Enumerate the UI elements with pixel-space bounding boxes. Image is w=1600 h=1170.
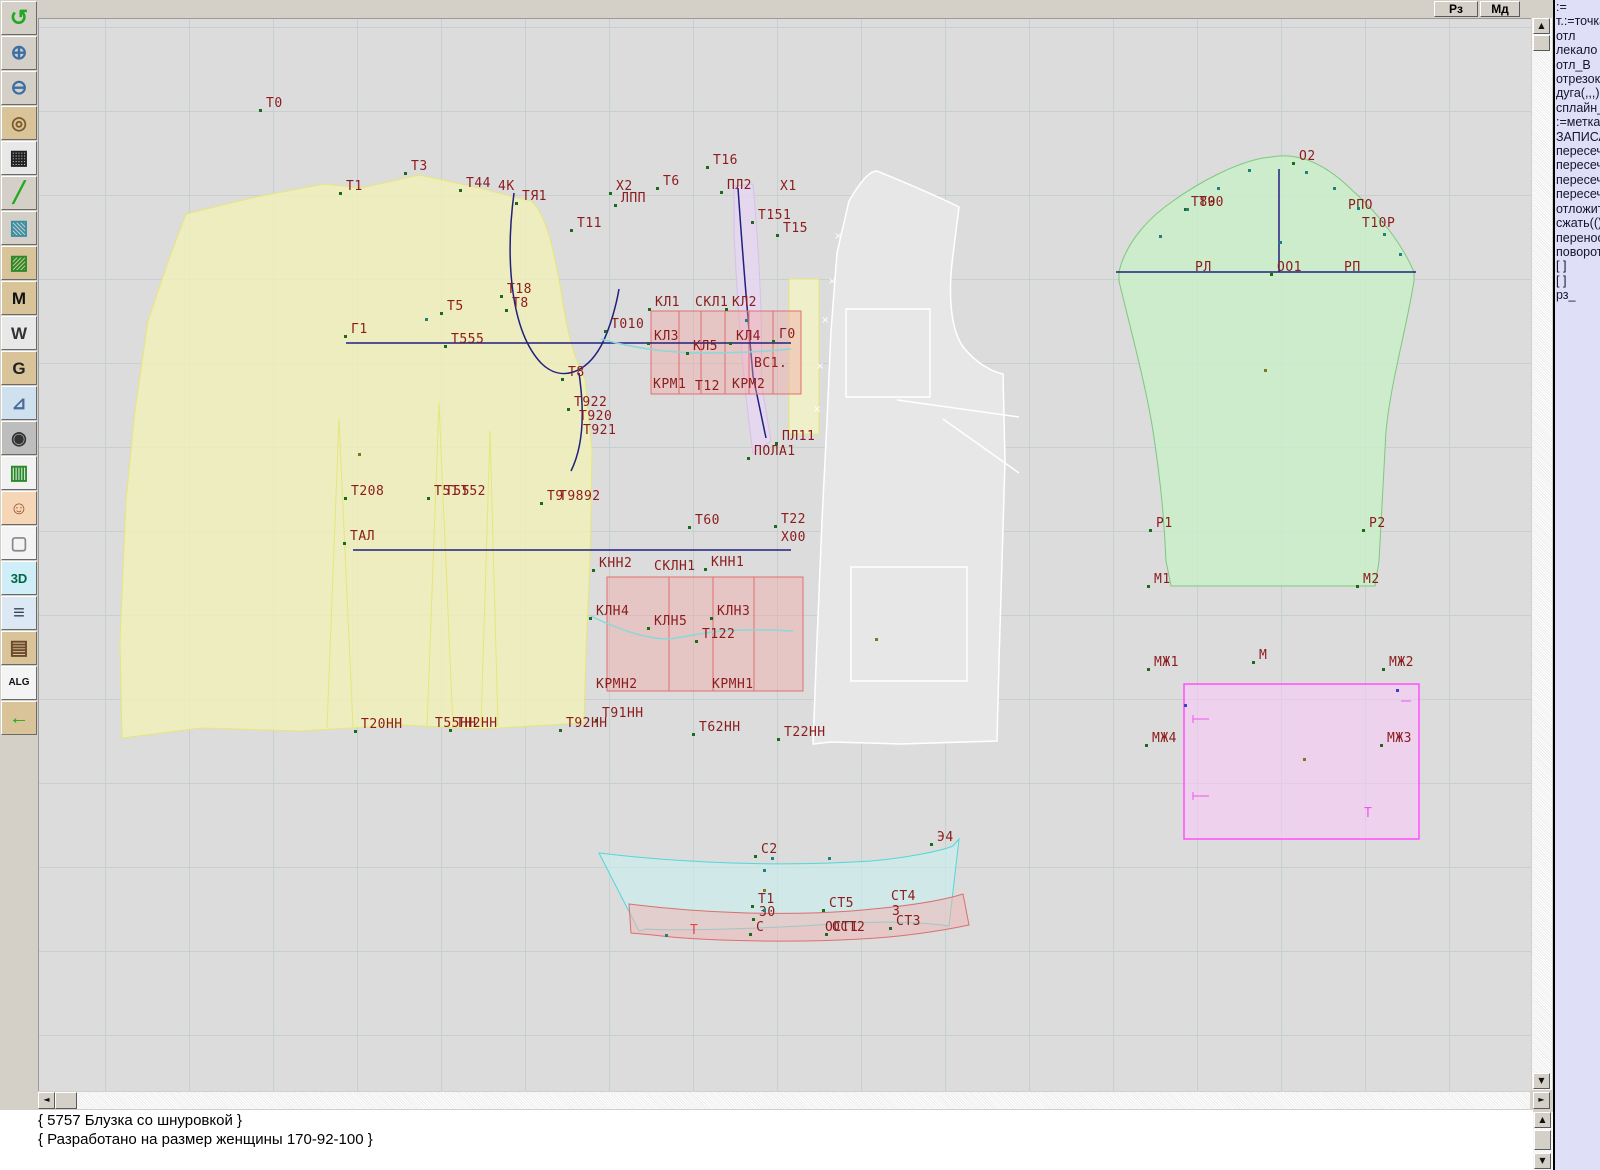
vscroll-up-button[interactable]: ▲ xyxy=(1533,18,1550,34)
status-area: { 5757 Блузка со шнуровкой } { Разработа… xyxy=(0,1110,1533,1170)
deco-point xyxy=(1217,187,1220,190)
point-marker xyxy=(747,457,750,460)
app-window: { "top_buttons": [ {"name":"rz-button","… xyxy=(0,0,1600,1170)
pattern-drawing xyxy=(39,19,1531,1091)
grid-icon[interactable]: ▦ xyxy=(1,141,37,175)
vscroll-down-button[interactable]: ▼ xyxy=(1533,1073,1550,1089)
command-item[interactable]: пересеч xyxy=(1555,144,1600,158)
piece-m-icon-glyph: M xyxy=(12,290,26,307)
piece-green-icon[interactable]: ▨ xyxy=(1,246,37,280)
threed-icon-glyph: 3D xyxy=(11,572,28,585)
rz-button[interactable]: Рз xyxy=(1434,1,1478,17)
point-marker xyxy=(688,526,691,529)
hscroll-right-button[interactable]: ► xyxy=(1533,1092,1550,1109)
photo-icon-glyph: ☺ xyxy=(10,499,28,517)
command-item[interactable]: дуга(,,,) xyxy=(1555,86,1600,100)
point-marker xyxy=(656,187,659,190)
point-marker xyxy=(354,730,357,733)
front-piece[interactable] xyxy=(813,171,1005,744)
deco-point xyxy=(763,869,766,872)
point-marker xyxy=(725,308,728,311)
left-toolbar: ↺⊕⊖◎▦╱▧▨MWG⊿◉▥☺▢3D≡▤ALG← xyxy=(0,1,38,736)
point-marker xyxy=(1362,529,1365,532)
point-marker xyxy=(1292,162,1295,165)
point-marker xyxy=(444,345,447,348)
command-item[interactable]: ЗАПИСА xyxy=(1555,130,1600,144)
point-marker xyxy=(704,568,707,571)
point-marker xyxy=(749,933,752,936)
command-item[interactable]: т.:=точка xyxy=(1555,14,1600,28)
image-icon[interactable]: ▧ xyxy=(1,211,37,245)
deco-point xyxy=(1279,241,1282,244)
deco-point xyxy=(1186,208,1189,211)
point-marker xyxy=(775,442,778,445)
deco-point xyxy=(763,889,766,892)
deco-point xyxy=(1184,704,1187,707)
point-marker xyxy=(589,617,592,620)
back-piece[interactable] xyxy=(120,175,592,738)
point-marker xyxy=(774,525,777,528)
deco-point xyxy=(771,857,774,860)
garment-sketch-icon[interactable]: ▢ xyxy=(1,526,37,560)
point-marker xyxy=(570,229,573,232)
point-marker xyxy=(647,627,650,630)
point-marker xyxy=(752,918,755,921)
point-marker xyxy=(825,933,828,936)
point-marker xyxy=(692,733,695,736)
point-marker xyxy=(592,569,595,572)
point-marker xyxy=(1380,744,1383,747)
point-marker xyxy=(344,335,347,338)
point-marker xyxy=(343,542,346,545)
g-piece-icon-glyph: G xyxy=(12,360,25,377)
deco-point xyxy=(1333,187,1336,190)
point-marker xyxy=(647,342,650,345)
command-item[interactable]: [ ] xyxy=(1555,259,1600,273)
table-icon[interactable]: ▥ xyxy=(1,456,37,490)
deco-point xyxy=(1383,233,1386,236)
command-panel: :=т.:=точкаотллекалоотл_Вотрезокдуга(,,,… xyxy=(1553,0,1600,1170)
point-marker xyxy=(1147,668,1150,671)
status-scroll-thumb[interactable] xyxy=(1534,1130,1551,1150)
table-icon-glyph: ▥ xyxy=(10,463,29,483)
command-item[interactable]: [ ] xyxy=(1555,274,1600,288)
alg-icon[interactable]: ALG xyxy=(1,666,37,700)
status-line-2: { Разработано на размер женщины 170-92-1… xyxy=(0,1129,1533,1148)
exit-icon[interactable]: ← xyxy=(1,701,37,735)
hscroll-left-button[interactable]: ◄ xyxy=(38,1092,55,1109)
point-marker xyxy=(754,855,757,858)
canvas-hscroll[interactable] xyxy=(38,1092,1530,1109)
segment-icon-glyph: ╱ xyxy=(13,183,25,203)
deco-point xyxy=(745,319,748,322)
command-item[interactable]: отл xyxy=(1555,29,1600,43)
point-marker xyxy=(1252,661,1255,664)
vscroll-thumb[interactable] xyxy=(1533,35,1550,51)
status-scroll-down-button[interactable]: ▼ xyxy=(1534,1153,1551,1169)
point-marker xyxy=(449,729,452,732)
point-marker xyxy=(686,352,689,355)
segment-icon[interactable]: ╱ xyxy=(1,176,37,210)
photo-icon[interactable]: ☺ xyxy=(1,491,37,525)
deco-point xyxy=(1248,169,1251,172)
point-marker xyxy=(695,640,698,643)
magenta-piece[interactable] xyxy=(1184,684,1419,839)
camera-icon[interactable]: ◉ xyxy=(1,421,37,455)
command-item[interactable]: перенос xyxy=(1555,231,1600,245)
zoom-out-icon[interactable]: ⊖ xyxy=(1,71,37,105)
command-item[interactable]: лекало xyxy=(1555,43,1600,57)
deco-point xyxy=(828,857,831,860)
deco-point xyxy=(763,909,766,912)
command-item[interactable]: пересеч xyxy=(1555,158,1600,172)
point-marker xyxy=(1147,585,1150,588)
compass-w-icon-glyph: W xyxy=(11,325,27,342)
garment-sketch-icon-glyph: ▢ xyxy=(10,534,27,552)
exit-icon-glyph: ← xyxy=(9,708,29,728)
point-marker xyxy=(595,719,598,722)
point-marker xyxy=(344,497,347,500)
deco-point xyxy=(1303,758,1306,761)
deco-point xyxy=(1399,253,1402,256)
text-list-icon-glyph: ≡ xyxy=(13,603,25,623)
point-marker xyxy=(1145,744,1148,747)
deco-point xyxy=(1159,235,1162,238)
alg-icon-glyph: ALG xyxy=(8,678,29,688)
point-marker xyxy=(822,909,825,912)
command-item[interactable]: отложит xyxy=(1555,202,1600,216)
books-icon[interactable]: ▤ xyxy=(1,631,37,665)
point-marker xyxy=(930,843,933,846)
g-piece-icon[interactable]: G xyxy=(1,351,37,385)
grid-icon-glyph: ▦ xyxy=(10,148,29,168)
point-marker xyxy=(729,342,732,345)
point-marker xyxy=(776,234,779,237)
piece-preview-icon[interactable]: ◎ xyxy=(1,106,37,140)
status-scroll-up-button[interactable]: ▲ xyxy=(1534,1112,1551,1128)
point-marker xyxy=(1382,668,1385,671)
text-list-icon[interactable]: ≡ xyxy=(1,596,37,630)
deco-point xyxy=(1305,171,1308,174)
command-item[interactable]: поворот xyxy=(1555,245,1600,259)
undo-icon-glyph: ↺ xyxy=(10,7,28,29)
zoom-in-icon-glyph: ⊕ xyxy=(11,43,28,63)
point-marker xyxy=(889,927,892,930)
pattern-canvas[interactable]: Т0Т3Т1Т444КТЯ1Х2Т6Т16ПЛ2Х1ЛППТ11Т151Т15Т… xyxy=(38,18,1531,1091)
point-marker xyxy=(259,109,262,112)
zoom-in-icon[interactable]: ⊕ xyxy=(1,36,37,70)
point-marker xyxy=(459,189,462,192)
deco-point xyxy=(425,318,428,321)
piece-preview-icon-glyph: ◎ xyxy=(11,114,27,132)
point-marker xyxy=(720,191,723,194)
point-marker xyxy=(751,221,754,224)
piece-green-icon-glyph: ▨ xyxy=(10,253,29,273)
point-marker xyxy=(561,378,564,381)
point-marker xyxy=(567,408,570,411)
point-marker xyxy=(777,738,780,741)
command-item[interactable]: сплайн_ xyxy=(1555,101,1600,115)
point-marker xyxy=(609,192,612,195)
point-marker xyxy=(404,172,407,175)
ruler-icon[interactable]: ⊿ xyxy=(1,386,37,420)
deco-point xyxy=(358,453,361,456)
point-marker xyxy=(648,308,651,311)
command-item[interactable]: :=метка xyxy=(1555,115,1600,129)
point-marker xyxy=(1356,585,1359,588)
point-marker xyxy=(515,202,518,205)
point-marker xyxy=(706,166,709,169)
compass-w-icon[interactable]: W xyxy=(1,316,37,350)
deco-point xyxy=(665,934,668,937)
command-item[interactable]: отрезок xyxy=(1555,72,1600,86)
threed-icon[interactable]: 3D xyxy=(1,561,37,595)
point-marker xyxy=(751,905,754,908)
command-item[interactable]: рз_ xyxy=(1555,288,1600,302)
piece-m-icon[interactable]: M xyxy=(1,281,37,315)
canvas-vscroll[interactable] xyxy=(1532,18,1552,1090)
command-item[interactable]: пересеч xyxy=(1555,187,1600,201)
undo-icon[interactable]: ↺ xyxy=(1,1,37,35)
deco-point xyxy=(1396,689,1399,692)
point-marker xyxy=(500,295,503,298)
point-marker xyxy=(427,497,430,500)
status-line-1: { 5757 Блузка со шнуровкой } xyxy=(0,1110,1533,1129)
command-item[interactable]: := xyxy=(1555,0,1600,14)
point-marker xyxy=(1149,529,1152,532)
md-button[interactable]: Мд xyxy=(1480,1,1520,17)
point-marker xyxy=(614,204,617,207)
deco-point xyxy=(1264,369,1267,372)
hscroll-thumb[interactable] xyxy=(55,1092,77,1109)
point-marker xyxy=(339,192,342,195)
point-marker xyxy=(1270,273,1273,276)
point-marker xyxy=(710,617,713,620)
books-icon-glyph: ▤ xyxy=(10,638,29,658)
point-marker xyxy=(440,312,443,315)
command-item[interactable]: сжать(() xyxy=(1555,216,1600,230)
deco-point xyxy=(1357,207,1360,210)
command-item[interactable]: отл_В xyxy=(1555,58,1600,72)
ruler-icon-glyph: ⊿ xyxy=(11,394,26,412)
deco-point xyxy=(875,638,878,641)
point-marker xyxy=(604,330,607,333)
point-marker xyxy=(772,340,775,343)
point-marker xyxy=(540,502,543,505)
point-marker xyxy=(505,309,508,312)
camera-icon-glyph: ◉ xyxy=(11,429,27,447)
image-icon-glyph: ▧ xyxy=(10,218,29,238)
command-item[interactable]: пересеч xyxy=(1555,173,1600,187)
zoom-out-icon-glyph: ⊖ xyxy=(11,78,28,98)
point-marker xyxy=(559,729,562,732)
